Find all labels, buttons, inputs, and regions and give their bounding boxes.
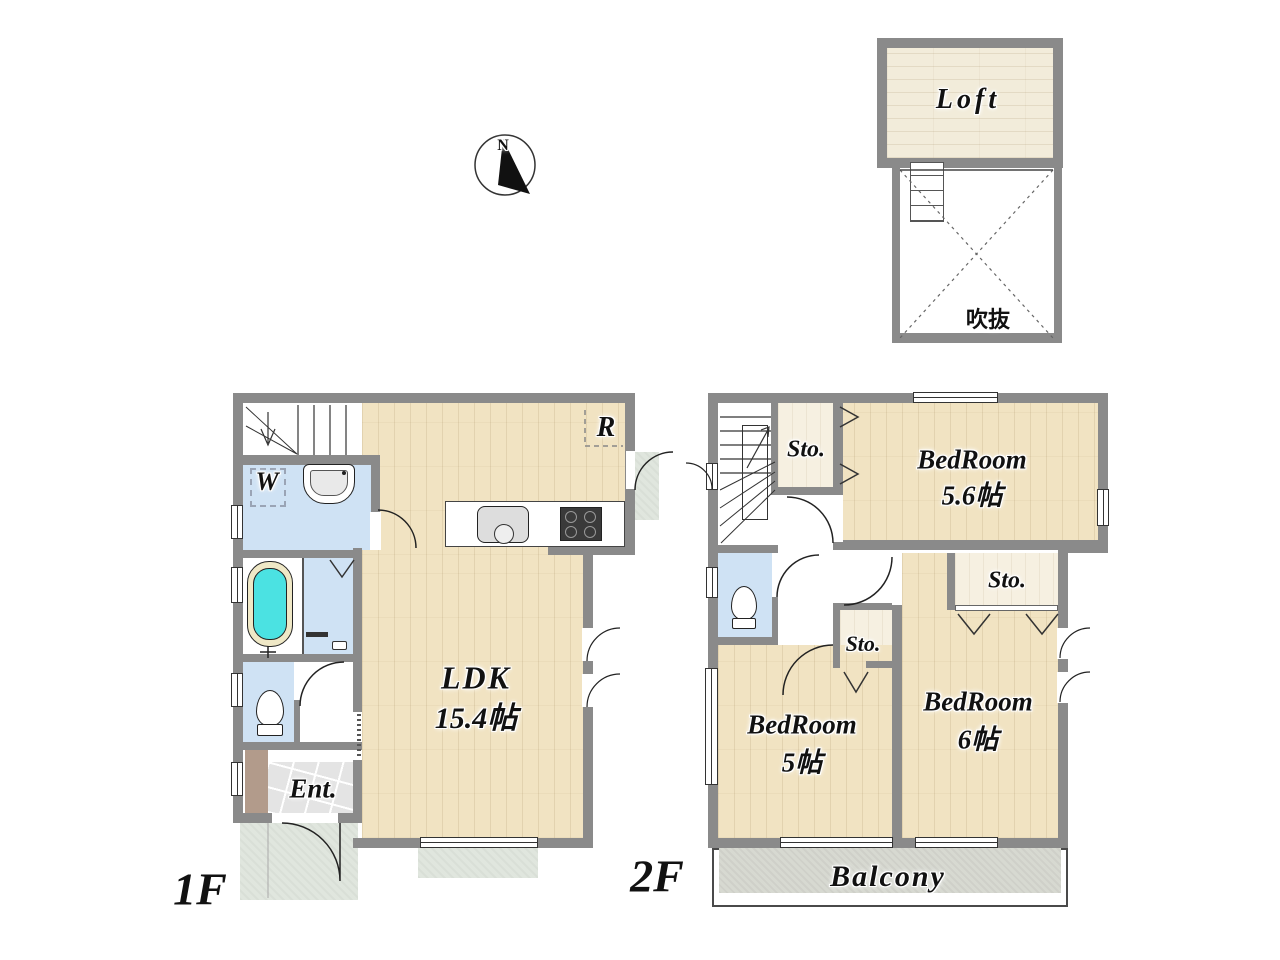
f1-washroom-right-wall xyxy=(371,455,380,512)
f1-back-door-opening xyxy=(626,451,635,489)
f1-ldk-size: 15.4帖 xyxy=(435,693,518,737)
loft-ladder xyxy=(910,162,944,222)
f2-bedroom3-left-wall xyxy=(892,605,902,838)
loft-label: Loft xyxy=(936,84,1000,116)
f1-washroom-door-opening xyxy=(370,512,381,550)
f2-storage3-left-wall xyxy=(833,603,840,668)
f2-bedroom2-sliding-window xyxy=(780,837,893,848)
f1-casement-window-1-opening xyxy=(582,628,593,661)
f2-bedroom3-size: 6帖 xyxy=(958,718,999,757)
f2-bedroom1-bottom-wall xyxy=(833,540,1108,550)
f1-ldk-sliding-window xyxy=(420,837,538,848)
f1-shoe-cabinet xyxy=(245,748,268,813)
f2-stairs-bottom-wall xyxy=(708,545,778,553)
f2-toilet-right-wall xyxy=(772,597,778,637)
f2-balcony-label: Balcony xyxy=(830,860,946,894)
f1-ldk-name: LDK xyxy=(441,660,511,697)
f1-toilet-bottom-wall xyxy=(243,742,362,750)
f1-ldk-left-wall-a xyxy=(353,548,362,712)
bath-stool xyxy=(332,641,347,650)
f1-bath-bottom-wall xyxy=(243,654,362,662)
f2-bedroom2-size: 5帖 xyxy=(782,741,823,780)
stove xyxy=(560,507,602,541)
f1-floor-label: 1F xyxy=(173,863,227,916)
f1-entrance-window xyxy=(231,762,243,796)
f1-bath-window xyxy=(231,567,243,603)
f2-casement-window-1-opening xyxy=(1057,628,1068,659)
void-bottom-wall xyxy=(892,333,1062,343)
toilet-1f xyxy=(256,690,284,740)
stair-rail xyxy=(742,425,768,520)
shower-mixer xyxy=(306,632,328,637)
f1-toilet-window xyxy=(231,673,243,707)
f2-bedroom2-window xyxy=(705,668,718,785)
f2-bedroom3-door-opening xyxy=(892,550,902,605)
f2-storage1-bottom-wall xyxy=(771,487,843,495)
f2-stairs-right-wall xyxy=(771,403,778,491)
f1-left-wall xyxy=(233,393,243,823)
f1-entrance-label: Ent. xyxy=(289,774,336,805)
f2-floor-label: 2F xyxy=(630,850,684,903)
void-left-wall xyxy=(892,158,900,343)
f1-back-door-pad xyxy=(635,452,659,520)
f1-entry-step xyxy=(268,748,358,763)
f2-storage2-label: Sto. xyxy=(988,568,1026,595)
f2-bedroom2-name: BedRoom xyxy=(747,710,857,741)
f1-front-door-opening xyxy=(272,813,338,823)
f2-bedroom1-door-opening xyxy=(833,495,843,542)
bathtub xyxy=(247,561,293,647)
f1-top-wall xyxy=(233,393,635,403)
vanity-sink xyxy=(303,464,355,504)
void-label: 吹抜 xyxy=(966,302,1010,334)
f2-storage1-right-wall xyxy=(833,403,843,495)
f2-bedroom3-sliding-window xyxy=(915,837,998,848)
f2-storage2-track xyxy=(955,605,1058,611)
f1-washroom-label: W xyxy=(255,467,278,497)
f2-top-wall xyxy=(708,393,1108,403)
f2-landing-opening xyxy=(778,545,822,553)
f1-toilet-right-wall xyxy=(294,700,300,742)
f1-bath-top-wall xyxy=(243,550,362,558)
f1-casement-window-2-opening xyxy=(582,674,593,707)
vanity-faucet-dot xyxy=(342,471,346,475)
f1-bath-divider xyxy=(302,558,304,654)
f2-bedroom1-size: 5.6帖 xyxy=(942,474,1003,513)
f2-storage1-label: Sto. xyxy=(787,437,825,464)
f2-toilet-door-opening xyxy=(772,553,778,597)
f2-bedroom3-name: BedRoom xyxy=(923,687,1033,718)
compass-north-label: N xyxy=(497,137,509,155)
f2-bedroom1-name: BedRoom xyxy=(917,445,1027,476)
f2-storage3-label: Sto. xyxy=(846,631,881,657)
f1-refrigerator-label: R xyxy=(597,412,616,444)
toilet-2f xyxy=(731,586,757,632)
f2-bedroom1-right-window xyxy=(1097,489,1109,526)
void-right-wall xyxy=(1054,158,1062,343)
f2-toilet-window xyxy=(706,567,718,598)
f2-storage2-left-wall xyxy=(947,553,955,610)
f1-terrace xyxy=(418,848,538,878)
f2-bedroom1-top-window xyxy=(913,392,998,403)
f2-bedroom2-door-opening xyxy=(778,637,833,645)
f1-washroom-window xyxy=(231,505,243,539)
f1-porch xyxy=(240,823,358,900)
floor-plan-canvas: Loft 吹抜 xyxy=(0,0,1280,960)
f2-stair-window xyxy=(706,463,718,490)
f2-right-wall-top xyxy=(1098,393,1108,553)
f2-casement-window-2-opening xyxy=(1057,672,1068,703)
kitchen-sink xyxy=(477,506,529,543)
